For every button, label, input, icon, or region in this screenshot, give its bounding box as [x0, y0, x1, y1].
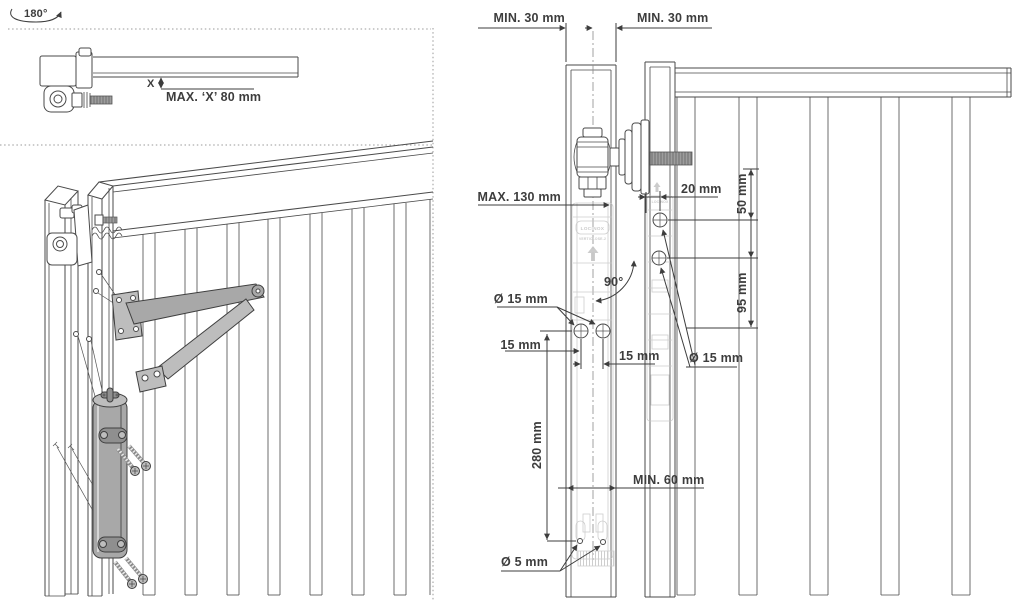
fence-bars: [677, 97, 970, 595]
faint-label-strip: [596, 514, 603, 532]
dim-min30-left: MIN. 30 mm: [478, 11, 592, 62]
dimension-view: LOCINOX VERTICLOSE-2 LOCINOX: [478, 11, 1011, 597]
fence-bar: [881, 97, 899, 595]
detail-hinge-assembly: [40, 48, 112, 112]
dim-label: 90°: [604, 275, 624, 289]
model-label: VERTICLOSE-2: [579, 237, 606, 241]
brand-label: LOCINOX: [581, 226, 605, 231]
closer-cylinder: [93, 388, 127, 558]
gate-infill-bars: [143, 199, 430, 595]
diagram-canvas: 180° X MAX.: [0, 0, 1017, 600]
dim-20mm: 20 mm: [638, 182, 722, 213]
dim-label: 15 mm: [500, 338, 541, 352]
bottom-hole-5mm: [601, 540, 606, 545]
fence-rail: [675, 68, 1011, 97]
max-x-label: MAX. ‘X’ 80 mm: [166, 90, 261, 104]
dim-min60: MIN. 60 mm: [558, 473, 704, 488]
fence-bar: [952, 97, 970, 595]
infill-bar: [143, 233, 155, 595]
dim-label: MIN. 30 mm: [637, 11, 708, 25]
screw-glyph: [53, 442, 59, 448]
dim-min30-right: MIN. 30 mm: [616, 11, 712, 62]
detail-max-x: X MAX. ‘X’ 80 mm: [40, 48, 298, 112]
x-marker-label: X: [147, 78, 155, 90]
infill-bar: [268, 218, 280, 595]
isometric-view: [45, 141, 433, 596]
dim-15mm-left: 15 mm: [500, 331, 579, 352]
infill-bar: [310, 213, 322, 595]
detail-gate-rail: [93, 57, 298, 77]
infill-bar: [185, 228, 197, 595]
dim-90deg: 90°: [596, 261, 634, 301]
up-arrow-glyph: [654, 182, 661, 192]
dim-label: Ø 15 mm: [689, 351, 743, 365]
detail-dimension-x: X MAX. ‘X’ 80 mm: [147, 78, 261, 104]
dim-label: 15 mm: [619, 349, 660, 363]
gate-top-rail: [99, 141, 433, 238]
drill-hole: [94, 289, 99, 294]
dim-label: 20 mm: [681, 182, 722, 196]
bottom-hole-5mm: [578, 539, 583, 544]
dim-label: MIN. 30 mm: [494, 11, 565, 25]
hinge-assembly-front: [574, 120, 692, 197]
infill-bar: [394, 203, 406, 595]
post-hole-15mm: [652, 251, 666, 265]
threaded-rod: [650, 152, 692, 165]
hinge-body: [577, 137, 608, 177]
faint-hatch-block: [578, 551, 614, 566]
installation-instruction-sheet: 180° X MAX.: [0, 0, 1017, 600]
dim-label: Ø 15 mm: [494, 292, 548, 306]
gate-hinge-assembly: [47, 205, 122, 266]
arm-elbow-plate: [136, 366, 166, 392]
fence-bar: [810, 97, 828, 595]
dim-label: Ø 5 mm: [501, 555, 548, 569]
dim-95mm: 95 mm: [667, 219, 758, 328]
rotation-label: 180°: [24, 8, 48, 20]
hinge-nut: [579, 177, 606, 189]
drill-hole: [97, 270, 102, 275]
gate-hole-15mm: [596, 324, 610, 338]
gate-hole-15mm: [574, 324, 588, 338]
dim-280mm: 280 mm: [530, 334, 576, 541]
infill-bar: [352, 208, 364, 595]
dim-label: 95 mm: [735, 272, 749, 313]
fence-bar: [739, 97, 757, 595]
post-hole-15mm: [653, 213, 667, 227]
closer-arm-assembly: [112, 284, 264, 392]
drill-hole: [87, 337, 92, 342]
detail-threaded-rod: [90, 96, 112, 104]
dim-label: MIN. 60 mm: [633, 473, 704, 487]
up-arrow-glyph: [588, 246, 599, 261]
header-rotation: 180°: [11, 8, 61, 22]
hinge-flange: [632, 123, 641, 191]
infill-bar: [227, 223, 239, 595]
fence-bar: [677, 97, 695, 595]
dim-label: MAX. 130 mm: [478, 190, 561, 204]
dim-label: 280 mm: [530, 421, 544, 469]
dim-label: 50 mm: [735, 173, 749, 214]
drill-hole: [74, 332, 79, 337]
